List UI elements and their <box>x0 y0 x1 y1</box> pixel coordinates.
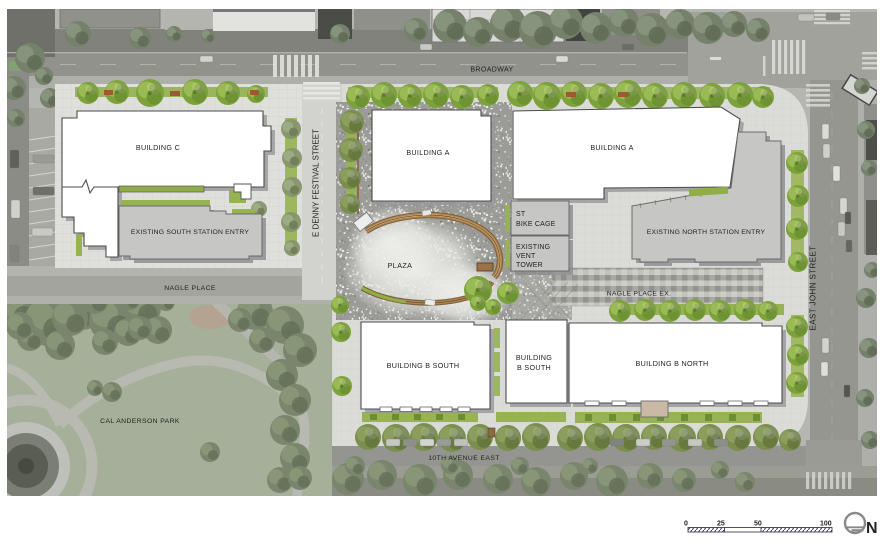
svg-text:10TH AVENUE EAST: 10TH AVENUE EAST <box>428 455 500 462</box>
svg-text:NAGLE PLACE EX.: NAGLE PLACE EX. <box>607 291 672 298</box>
svg-text:100: 100 <box>820 521 832 528</box>
svg-text:TOWER: TOWER <box>516 262 543 269</box>
svg-text:E DENNY FESTIVAL STREET: E DENNY FESTIVAL STREET <box>312 129 321 237</box>
svg-text:EXISTING: EXISTING <box>516 244 550 251</box>
svg-text:BIKE CAGE: BIKE CAGE <box>516 221 556 228</box>
svg-text:ST: ST <box>516 211 526 218</box>
svg-text:EXISTING NORTH STATION ENTRY: EXISTING NORTH STATION ENTRY <box>647 229 766 236</box>
svg-text:BUILDING: BUILDING <box>516 353 552 362</box>
svg-text:PLAZA: PLAZA <box>388 261 413 270</box>
svg-text:CAL ANDERSON PARK: CAL ANDERSON PARK <box>100 418 180 425</box>
svg-text:BUILDING B SOUTH: BUILDING B SOUTH <box>387 361 460 370</box>
svg-text:VENT: VENT <box>516 253 536 260</box>
svg-text:NAGLE PLACE: NAGLE PLACE <box>164 285 216 292</box>
svg-text:N: N <box>866 520 878 537</box>
svg-text:BUILDING A: BUILDING A <box>590 143 633 152</box>
svg-text:EAST JOHN STREET: EAST JOHN STREET <box>809 246 818 331</box>
svg-text:EXISTING SOUTH STATION ENTRY: EXISTING SOUTH STATION ENTRY <box>131 229 249 236</box>
svg-text:25: 25 <box>717 521 725 528</box>
svg-text:BUILDING C: BUILDING C <box>136 143 180 152</box>
svg-text:BROADWAY: BROADWAY <box>470 67 513 74</box>
svg-text:0: 0 <box>684 521 688 528</box>
svg-text:B SOUTH: B SOUTH <box>517 363 551 372</box>
svg-text:BUILDING B NORTH: BUILDING B NORTH <box>636 359 709 368</box>
svg-text:BUILDING A: BUILDING A <box>406 148 449 157</box>
svg-text:50: 50 <box>754 521 762 528</box>
